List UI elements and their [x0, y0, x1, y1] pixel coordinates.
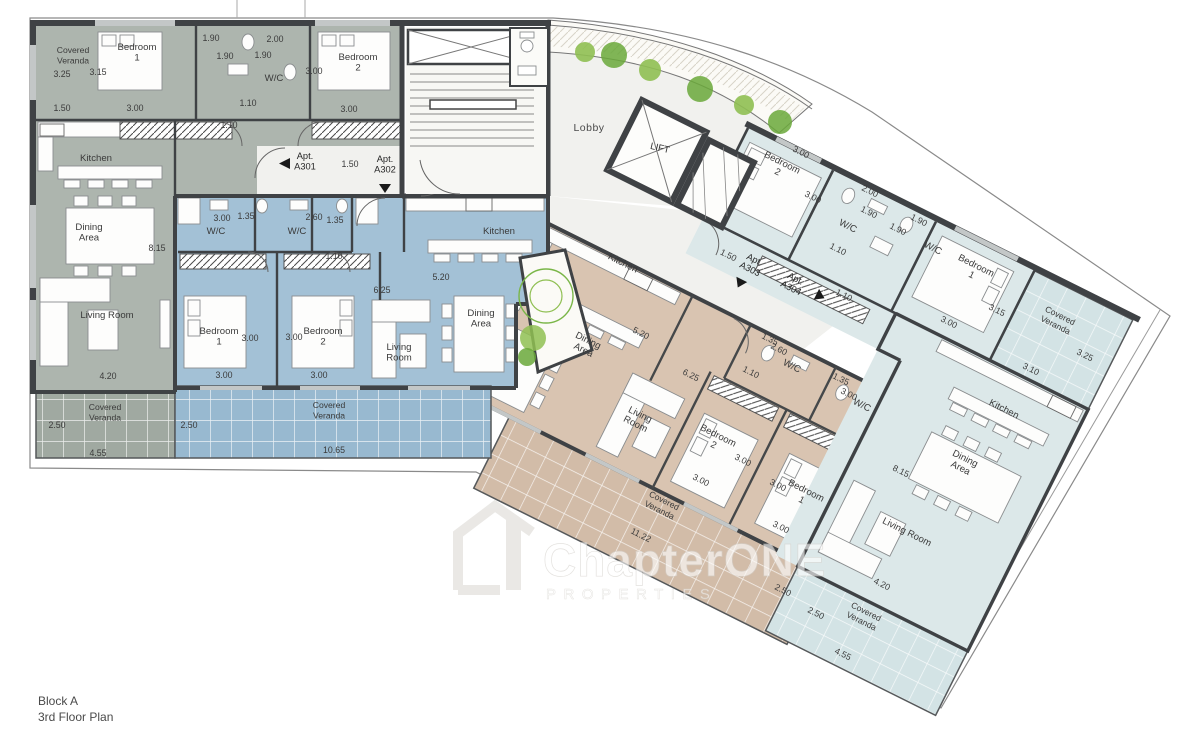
staircase	[406, 27, 548, 194]
title-block: Block A 3rd Floor Plan	[38, 694, 113, 724]
sofa-icon	[372, 300, 430, 378]
dim-label: 1.10	[239, 98, 256, 108]
dim-label: 1.90	[216, 51, 233, 61]
dim-label: 3.00	[340, 104, 357, 114]
living-label: Living Room	[80, 310, 133, 321]
wc-top	[510, 28, 548, 86]
dim-label: 2.50	[180, 420, 197, 430]
dim-label: 4.20	[99, 371, 116, 381]
apt-a302-label: Apt.A302	[374, 154, 396, 175]
dim-label: 2.00	[266, 34, 283, 44]
brand-logo-icon	[458, 506, 532, 590]
dining-label: DiningArea	[467, 308, 494, 330]
dim-label: 1.35	[326, 215, 343, 225]
veranda-label: CoveredVeranda	[313, 400, 346, 421]
dim-label: 1.10	[220, 120, 237, 130]
wc-label: W/C	[288, 226, 307, 237]
wc-label: W/C	[265, 73, 284, 84]
dim-label: 4.55	[89, 448, 106, 458]
dim-label: 6.25	[373, 285, 390, 295]
plan-floor-title: 3rd Floor Plan	[38, 710, 113, 724]
dim-label: 1.50	[53, 103, 70, 113]
living-label: LivingRoom	[386, 342, 412, 364]
dim-label: 1.10	[325, 251, 342, 261]
dim-label: 3.15	[89, 67, 106, 77]
dim-label: 3.25	[53, 69, 70, 79]
kitchen-label: Kitchen	[80, 153, 112, 164]
watermark-tagline: PROPERTIES	[546, 586, 717, 603]
dim-label: 1.35	[237, 211, 254, 221]
kitchen-label: Kitchen	[483, 226, 515, 237]
dim-label: 5.20	[432, 272, 449, 282]
veranda-label: CoveredVeranda	[57, 45, 90, 66]
dim-label: 3.00	[126, 103, 143, 113]
dim-label: 10.65	[323, 445, 345, 455]
floor-plan-page: CoveredVeranda 3.25 3.15 Bedroom1 1.90 2…	[0, 0, 1181, 737]
dim-label: 3.00	[213, 213, 230, 223]
veranda-label: CoveredVeranda	[89, 402, 122, 423]
watermark-brand: ChapterONE	[543, 534, 826, 586]
dim-label: 8.15	[148, 243, 165, 253]
dim-label: 3.00	[305, 66, 322, 76]
dim-label: 2.60	[305, 212, 322, 222]
dim-label: 3.00	[285, 332, 302, 342]
dining-label: DiningArea	[75, 222, 102, 244]
dim-label: 3.00	[215, 370, 232, 380]
floor-plan-svg: CoveredVeranda 3.25 3.15 Bedroom1 1.90 2…	[0, 0, 1181, 737]
plan-block-title: Block A	[38, 694, 78, 708]
dim-label: 1.50	[341, 159, 358, 169]
dim-label: 1.90	[202, 33, 219, 43]
dim-label: 3.00	[241, 333, 258, 343]
dim-label: 2.50	[48, 420, 65, 430]
apt-a301-label: Apt.A301	[294, 151, 316, 172]
wc-label: W/C	[207, 226, 226, 237]
lobby-label: Lobby	[573, 122, 604, 134]
dim-label: 1.90	[254, 50, 271, 60]
dim-label: 3.00	[310, 370, 327, 380]
